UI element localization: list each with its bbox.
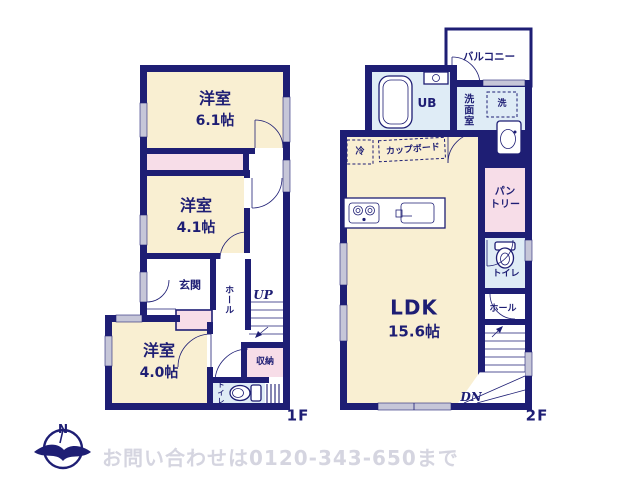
label-bedroom2-size: 4.1帖 (177, 220, 216, 236)
entrance-door-slot (140, 272, 147, 302)
shoe-cabinet (176, 310, 212, 330)
label-fridge: 冷 (355, 147, 364, 157)
room-bedroom-4-0 (112, 322, 207, 403)
window (283, 97, 290, 142)
room-ldk (347, 137, 478, 403)
label-floor1: 1F (287, 407, 310, 424)
bathtub-icon (379, 76, 412, 128)
label-washer: 洗 (497, 99, 506, 109)
label-bedroom3-name: 洋室 (143, 342, 175, 360)
wall (478, 165, 485, 182)
window (116, 315, 142, 322)
label-pantry-1: パン (495, 186, 516, 198)
window (378, 403, 451, 410)
wall (147, 148, 255, 154)
contact-text: お問い合わせは0120-343-650まで (102, 442, 459, 471)
wall (207, 322, 213, 334)
label-bedroom3-size: 4.0帖 (140, 365, 179, 381)
window (340, 243, 347, 285)
label-hall-1f: ホール (223, 285, 233, 315)
label-bedroom1-size: 6.1帖 (196, 113, 235, 129)
window (105, 336, 112, 366)
wall (478, 288, 532, 294)
washroom-sink-icon (497, 121, 521, 154)
toilet-icon-1f (230, 385, 261, 401)
wall (147, 253, 220, 259)
label-bedroom2-name: 洋室 (180, 197, 212, 215)
kitchen-counter (344, 198, 445, 228)
wall (105, 403, 290, 410)
wall (478, 232, 532, 238)
window (140, 215, 147, 245)
label-floor2: 2F (526, 407, 549, 424)
wall (140, 65, 290, 72)
label-stairs-down: DN (460, 391, 481, 405)
wall (147, 170, 243, 176)
closet-strip (147, 154, 243, 170)
label-bedroom1-name: 洋室 (199, 90, 231, 108)
bath-sink-icon (424, 72, 448, 84)
label-stairs-up: UP (253, 289, 273, 303)
room-bedroom-6-1 (147, 72, 283, 148)
wall (478, 319, 532, 325)
wall (241, 342, 247, 383)
floor2-plan (340, 29, 532, 410)
label-toilet-2f: トイレ (492, 269, 519, 279)
label-ldk-name: LDK (390, 297, 438, 320)
wall (244, 170, 250, 178)
balcony-door (483, 80, 525, 86)
wall (207, 367, 213, 407)
window (525, 352, 532, 376)
compass-north-label: N (58, 422, 68, 436)
label-ldk-size: 15.6帖 (388, 323, 440, 340)
label-hall-2f: ホール (489, 304, 516, 314)
wall (210, 259, 216, 310)
window (525, 240, 532, 261)
louver-window (265, 384, 283, 403)
label-washroom: 洗面室 (461, 94, 473, 127)
window (283, 160, 290, 192)
label-pantry-2: トリー (490, 199, 520, 211)
wall (478, 322, 485, 380)
stairs-up (249, 302, 283, 338)
wall (244, 208, 250, 253)
compass-icon: N (34, 422, 91, 468)
label-entrance: 玄関 (179, 280, 201, 293)
window (140, 103, 147, 137)
floorplan-page: N 洋室 6.1帖 洋室 4.1帖 洋室 4.0帖 玄関 ホール UP 収納 ト… (0, 0, 640, 480)
wall (245, 259, 251, 330)
label-storage: 収納 (256, 357, 274, 367)
label-toilet-1f: トイレ (217, 381, 225, 405)
window (340, 305, 347, 341)
wall (241, 342, 283, 348)
wall (478, 163, 532, 168)
label-unit-bath: UB (418, 97, 437, 111)
label-balcony: バルコニー (463, 51, 515, 63)
